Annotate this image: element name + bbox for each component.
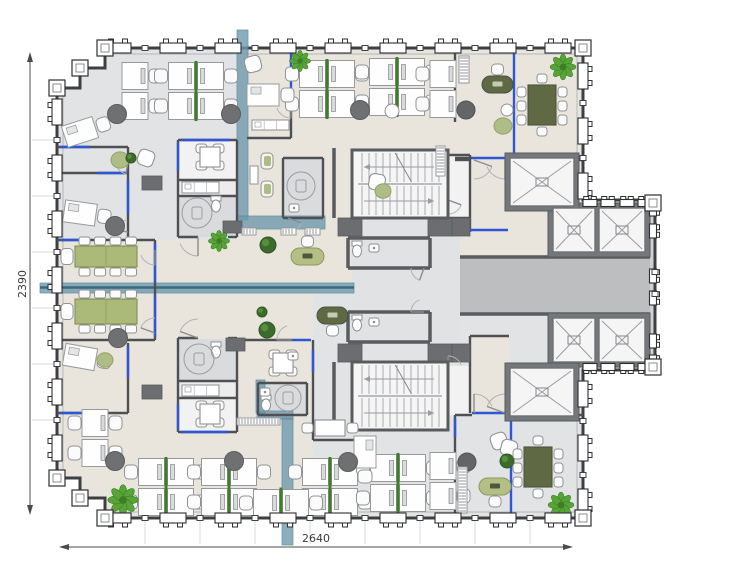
pilaster-crenel [328, 523, 333, 527]
facade-pilaster [52, 267, 62, 293]
wall-block [338, 344, 362, 362]
pilaster-crenel [383, 39, 388, 43]
pilaster-crenel [588, 384, 592, 389]
pilaster-crenel [218, 523, 223, 527]
facade-pilaster [578, 118, 588, 144]
chair [110, 290, 121, 298]
pilaster-crenel [48, 117, 52, 122]
task-chair [68, 416, 81, 430]
window-mullion [362, 46, 368, 51]
facade-pilaster [578, 381, 588, 407]
monitor [403, 461, 407, 476]
pilaster-crenel [588, 136, 592, 141]
window-mullion [307, 46, 313, 51]
task-chair [68, 446, 81, 460]
pilaster-crenel [588, 81, 592, 86]
facade-pilaster [325, 513, 351, 523]
plant-center [560, 64, 567, 71]
chair [95, 268, 106, 276]
pantry-counter [182, 385, 219, 396]
pilaster-crenel [48, 453, 52, 458]
sink [288, 352, 298, 360]
plant [289, 50, 310, 71]
facade-pilaster [578, 63, 588, 89]
pilaster-crenel [548, 39, 553, 43]
pilaster-crenel [609, 197, 614, 200]
window-mullion [472, 516, 478, 521]
wall-block [452, 218, 470, 236]
credenza [252, 120, 289, 130]
facade-pilaster [601, 200, 615, 207]
task-chair [155, 69, 168, 83]
facade-pilaster [52, 211, 62, 237]
monitor [322, 465, 326, 480]
facade-pilaster [325, 43, 351, 53]
window-mullion [580, 101, 586, 106]
task-chair [258, 465, 271, 479]
facade-pilaster [545, 513, 571, 523]
pilaster-crenel [591, 197, 596, 200]
storage-shelf [242, 228, 256, 235]
monitor [68, 203, 79, 211]
monitor [221, 465, 225, 480]
monitor [251, 87, 261, 94]
pilaster-crenel [639, 371, 644, 374]
pilaster-crenel [328, 39, 333, 43]
column [106, 452, 125, 471]
pilaster-crenel [48, 214, 52, 219]
task-chair [358, 470, 372, 483]
monitor [188, 69, 192, 84]
stool [385, 104, 399, 118]
plant-pot [500, 454, 514, 468]
pilaster-crenel [508, 39, 513, 43]
toilet [352, 315, 362, 331]
facade-pilaster [270, 513, 296, 523]
facade-corner-tower [645, 195, 661, 211]
toilet [352, 241, 362, 257]
task-chair [416, 97, 429, 111]
window-mullion [252, 46, 258, 51]
pilaster-crenel [584, 197, 589, 200]
chair [554, 449, 563, 459]
task-chair [188, 465, 201, 479]
column [339, 453, 358, 472]
chair [517, 101, 526, 111]
pilaster-crenel [588, 191, 592, 196]
window-mullion [527, 46, 533, 51]
plant-pot [260, 237, 276, 253]
monitor [402, 95, 406, 110]
sink [369, 318, 379, 326]
pilaster-crenel [621, 371, 626, 374]
desk-equipment [490, 484, 500, 489]
chair [79, 290, 90, 298]
storage-shelf [436, 146, 445, 176]
toilet [211, 342, 221, 358]
facade-corner-tower [575, 40, 591, 56]
window-mullion [54, 194, 60, 199]
column [225, 452, 244, 471]
window-mullion [527, 516, 533, 521]
sink-drain [293, 207, 296, 210]
window-mullion [54, 138, 60, 143]
column [106, 452, 125, 471]
round-table [385, 104, 399, 118]
column [106, 217, 125, 236]
pilaster-crenel [383, 523, 388, 527]
pilaster-crenel [163, 523, 168, 527]
monitor [449, 97, 453, 112]
pilaster-crenel [233, 523, 238, 527]
pilaster-crenel [218, 39, 223, 43]
monitor [101, 416, 105, 431]
left-dimension-arrow-up [27, 52, 33, 62]
plant-highlight [262, 239, 269, 246]
plant-pot [126, 153, 136, 163]
pilaster-crenel [453, 523, 458, 527]
pilaster-crenel [123, 39, 128, 43]
monitor [449, 459, 453, 474]
monitor [101, 446, 105, 461]
toilet [261, 395, 271, 411]
column [351, 101, 370, 120]
bean-chair [97, 353, 113, 367]
monitor [234, 495, 238, 510]
chair [126, 290, 137, 298]
sink-drain [373, 247, 376, 250]
facade-pilaster [52, 379, 62, 405]
desk-equipment [493, 82, 503, 87]
storage-shelf [237, 418, 280, 425]
column [225, 452, 244, 471]
plant-center [558, 502, 565, 509]
task-chair [286, 67, 299, 81]
facade-pilaster [650, 224, 657, 238]
plant-highlight [127, 154, 132, 159]
monitor [390, 461, 394, 476]
meeting-table-4 [196, 401, 224, 427]
pilaster-crenel [657, 277, 660, 282]
window-mullion [417, 516, 423, 521]
wall-block [142, 176, 162, 190]
pilaster-crenel [609, 371, 614, 374]
table-top [200, 404, 220, 424]
pilaster-crenel [343, 523, 348, 527]
bean-chair [494, 118, 512, 134]
column [108, 105, 127, 124]
cafe-armchair-cushion [264, 184, 271, 194]
pilaster-crenel [398, 39, 403, 43]
facade-pilaster [215, 43, 241, 53]
facade-pilaster [490, 43, 516, 53]
facade-corner-tower [97, 40, 113, 56]
monitor [403, 491, 407, 506]
pilaster-crenel [588, 176, 592, 181]
column [106, 217, 125, 236]
task-chair [357, 491, 370, 505]
pilaster-crenel [163, 39, 168, 43]
monitor [171, 495, 175, 510]
chair [302, 236, 314, 247]
facade-corner-tower [645, 359, 661, 375]
monitor [390, 491, 394, 506]
pilaster-crenel [591, 371, 596, 374]
chair [79, 237, 90, 245]
sink-drain [264, 391, 267, 394]
sink [369, 244, 379, 252]
monitor [188, 99, 192, 114]
storage-shelf [458, 467, 467, 513]
monitor [141, 69, 145, 84]
chair [489, 496, 501, 507]
window-mullion [652, 270, 658, 275]
side-table-dark [457, 101, 475, 119]
facade-pilaster [435, 43, 461, 53]
task-chair [289, 465, 302, 479]
task-chair [188, 495, 201, 509]
chair [302, 423, 313, 433]
plant-highlight [502, 456, 508, 462]
wall-block [223, 221, 242, 233]
facade-pilaster [650, 334, 657, 348]
toilet [211, 196, 221, 212]
floor-plan-canvas: 2390 2640 [0, 0, 753, 580]
cafe-armchair-cushion [264, 156, 271, 166]
pilaster-crenel [657, 342, 660, 347]
facade-corner-tower [97, 510, 113, 526]
facade-pilaster [270, 43, 296, 53]
facade-pilaster [578, 435, 588, 461]
sink [260, 388, 270, 396]
cafe-table [250, 166, 258, 184]
facade-pilaster [380, 43, 406, 53]
pilaster-crenel [273, 523, 278, 527]
wall-block [338, 218, 362, 236]
chair [79, 325, 90, 333]
cafe-table [250, 166, 258, 184]
monitor [319, 97, 323, 112]
stool [501, 104, 513, 116]
pilaster-crenel [178, 523, 183, 527]
monitor [335, 465, 339, 480]
toilet-bowl [353, 245, 362, 257]
window-mullion [54, 418, 60, 423]
monitor [332, 97, 336, 112]
wall-block [452, 344, 470, 362]
facade-corner-tower [49, 470, 65, 486]
chair [95, 325, 106, 333]
bean-chair [97, 353, 113, 367]
monitor [389, 65, 393, 80]
monitor [332, 67, 336, 82]
pilaster-crenel [48, 158, 52, 163]
facade-pilaster [160, 43, 186, 53]
chair [347, 423, 358, 433]
pilaster-crenel [178, 39, 183, 43]
meeting-table-top [524, 447, 552, 487]
pilaster-crenel [588, 121, 592, 126]
pilaster-crenel [273, 39, 278, 43]
wall-block [226, 338, 245, 351]
wall-block [428, 218, 452, 236]
chair [110, 268, 121, 276]
pilaster-crenel [48, 270, 52, 275]
column [222, 105, 241, 124]
pilaster-crenel [453, 39, 458, 43]
chair [126, 237, 137, 245]
chair [79, 268, 90, 276]
facade-pilaster [52, 99, 62, 125]
task-chair [310, 496, 323, 510]
window-mullion [307, 516, 313, 521]
armchair [61, 304, 73, 320]
pilaster-crenel [548, 523, 553, 527]
pantry-counter [182, 182, 219, 193]
pilaster-crenel [233, 39, 238, 43]
counter [252, 120, 289, 130]
plan-graphics [32, 30, 661, 545]
facade-pilaster [545, 43, 571, 53]
pilaster-crenel [48, 397, 52, 402]
table-top [200, 147, 220, 167]
monitor [68, 347, 79, 356]
chair [558, 101, 567, 111]
task-chair [281, 88, 294, 102]
window-mullion [580, 419, 586, 424]
chair [558, 87, 567, 97]
facade-corner-tower [72, 490, 88, 506]
monitor [273, 496, 277, 511]
column [109, 329, 128, 348]
meeting-table-top [528, 85, 556, 125]
monitor [221, 495, 225, 510]
task-chair [155, 99, 168, 113]
bean-chair [494, 118, 512, 134]
window-mullion [580, 473, 586, 478]
window-mullion [362, 516, 368, 521]
facade-pilaster [490, 513, 516, 523]
desk-equipment [303, 254, 313, 259]
toilet-bowl [353, 319, 362, 331]
storage-shelf [237, 418, 280, 425]
pilaster-crenel [48, 341, 52, 346]
chair [110, 237, 121, 245]
column [108, 105, 127, 124]
window-mullion [142, 46, 148, 51]
facade-corner-tower [72, 60, 88, 76]
pilaster-crenel [588, 438, 592, 443]
pilaster-crenel [657, 299, 660, 304]
monitor [158, 465, 162, 480]
chair [533, 436, 543, 445]
column [339, 453, 358, 472]
pilaster-crenel [588, 453, 592, 458]
chair [517, 115, 526, 125]
pilaster-crenel [48, 229, 52, 234]
window-mullion [580, 156, 586, 161]
column [109, 329, 128, 348]
sink-drain [373, 321, 376, 324]
chair [537, 127, 547, 136]
chair [126, 268, 137, 276]
task-chair [125, 465, 138, 479]
pilaster-crenel [602, 197, 607, 200]
bean-chair [375, 184, 391, 198]
pilaster-crenel [588, 399, 592, 404]
monitor [319, 67, 323, 82]
chair [554, 463, 563, 473]
chair [126, 325, 137, 333]
task-chair [109, 416, 122, 430]
pilaster-crenel [48, 173, 52, 178]
window-mullion [54, 250, 60, 255]
monitor [141, 99, 145, 114]
chair [517, 87, 526, 97]
cafe-armchair [261, 153, 273, 169]
pilaster-crenel [398, 523, 403, 527]
storage-shelf [459, 56, 469, 83]
pilaster-crenel [493, 39, 498, 43]
wall-block [142, 385, 162, 399]
bottom-dimension-arrow-left [59, 544, 69, 550]
pilaster-crenel [288, 39, 293, 43]
window-mullion [252, 516, 258, 521]
pilaster-crenel [493, 523, 498, 527]
facade-pilaster [52, 435, 62, 461]
window-mullion [197, 516, 203, 521]
plant [208, 230, 229, 251]
pilaster-crenel [563, 39, 568, 43]
sink-drain [292, 355, 295, 358]
plant-center [119, 496, 127, 504]
chair [513, 463, 522, 473]
table-top [315, 420, 345, 436]
column [222, 105, 241, 124]
pilaster-crenel [288, 523, 293, 527]
facade-corner-tower [575, 510, 591, 526]
window-mullion [54, 306, 60, 311]
floor-zone [460, 258, 650, 314]
armchair [61, 249, 73, 265]
chair [95, 290, 106, 298]
pilaster-crenel [602, 371, 607, 374]
facade-pilaster [435, 513, 461, 523]
plant-pot [257, 307, 267, 317]
pilaster-crenel [657, 335, 660, 340]
pilaster-crenel [438, 523, 443, 527]
facade-pilaster [380, 513, 406, 523]
storage-shelf [281, 228, 296, 235]
monitor [286, 496, 290, 511]
stool [501, 104, 513, 116]
pilaster-crenel [639, 197, 644, 200]
facade-pilaster [583, 200, 597, 207]
sink [289, 204, 299, 212]
pilaster-crenel [48, 438, 52, 443]
monitor [201, 99, 205, 114]
monitor [335, 495, 339, 510]
pilaster-crenel [48, 285, 52, 290]
bean-chair [375, 184, 391, 198]
plant-highlight [261, 324, 268, 331]
pilaster-crenel [588, 492, 592, 497]
pilaster-crenel [657, 232, 660, 237]
facade-pilaster [52, 155, 62, 181]
task-chair [356, 65, 369, 79]
monitor [449, 489, 453, 504]
plant-highlight [258, 308, 263, 313]
